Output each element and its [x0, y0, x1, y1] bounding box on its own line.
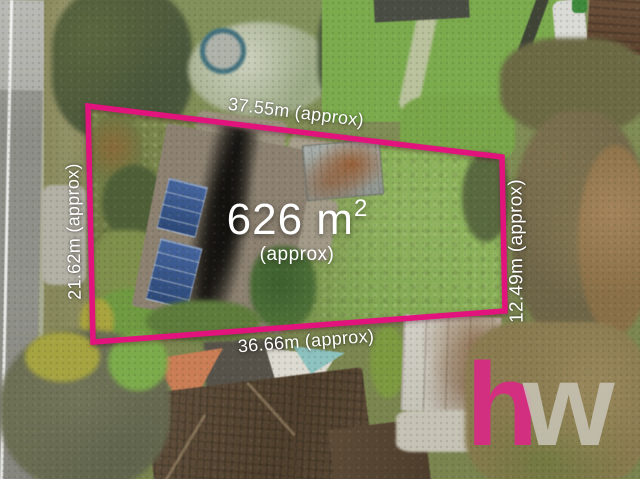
- garden-shed: [302, 139, 385, 202]
- watermark-letter-w: w: [523, 339, 615, 471]
- land-area-label: 626 m2 (approx): [177, 197, 417, 266]
- shrub-right-corner: [462, 152, 510, 242]
- area-superscript: 2: [354, 195, 367, 222]
- area-qualifier: (approx): [177, 244, 417, 266]
- round-pool: [200, 28, 246, 74]
- aerial-property-photo: 37.55m (approx) 21.62m (approx) 12.49m (…: [0, 0, 640, 479]
- agency-watermark-logo: hw: [466, 346, 615, 464]
- yellow-bush-bottom-left: [25, 332, 100, 382]
- dimension-label-right: 12.49m (approx): [505, 131, 529, 371]
- green-bush-bottom-left: [108, 333, 168, 391]
- green-bin: [572, 0, 587, 13]
- road-light-patch: [0, 0, 45, 91]
- dimension-label-left: 21.62m (approx): [61, 111, 86, 351]
- roof-ridge: [246, 382, 296, 437]
- area-number: 626 m: [227, 195, 354, 244]
- area-value: 626 m2: [177, 197, 417, 242]
